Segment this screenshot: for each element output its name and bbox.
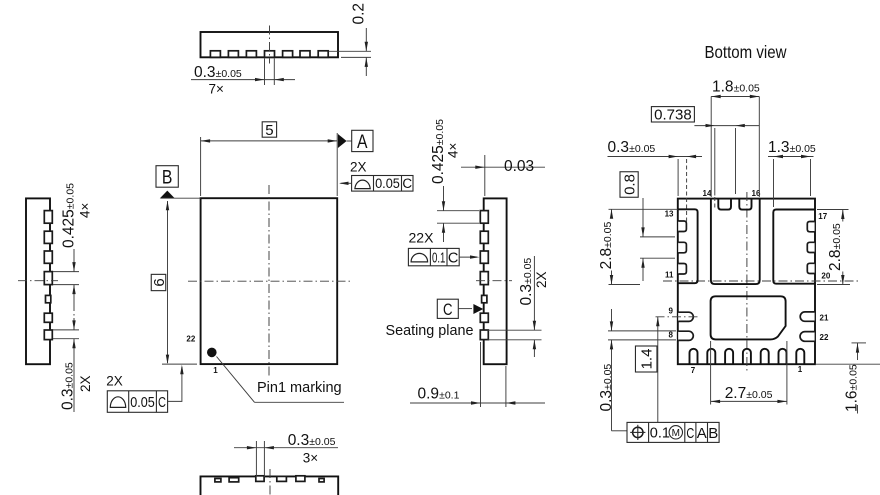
- svg-text:13: 13: [665, 210, 674, 219]
- svg-text:C: C: [158, 394, 166, 411]
- svg-text:2X: 2X: [78, 375, 93, 392]
- svg-text:2X: 2X: [106, 374, 123, 389]
- svg-text:1: 1: [213, 366, 218, 375]
- svg-text:7: 7: [691, 366, 696, 375]
- svg-text:C: C: [448, 250, 458, 266]
- svg-text:7×: 7×: [209, 82, 224, 97]
- svg-text:0.8: 0.8: [622, 174, 639, 195]
- svg-text:C: C: [443, 300, 453, 319]
- svg-text:21: 21: [820, 314, 829, 323]
- svg-text:3×: 3×: [303, 451, 318, 466]
- svg-text:C: C: [686, 425, 694, 442]
- svg-text:0.738: 0.738: [654, 107, 692, 124]
- svg-text:A: A: [357, 132, 368, 153]
- svg-text:C: C: [402, 176, 412, 191]
- svg-text:22X: 22X: [409, 230, 435, 246]
- svg-text:Bottom view: Bottom view: [705, 42, 787, 62]
- svg-text:B: B: [708, 425, 718, 442]
- svg-text:Seating plane: Seating plane: [386, 323, 474, 339]
- svg-text:A: A: [697, 425, 707, 442]
- svg-text:2X: 2X: [350, 160, 367, 175]
- svg-text:5: 5: [265, 122, 273, 139]
- svg-text:6: 6: [151, 278, 168, 286]
- svg-text:8: 8: [669, 331, 674, 340]
- svg-text:0.05: 0.05: [130, 394, 155, 411]
- svg-text:17: 17: [818, 212, 827, 221]
- svg-text:20: 20: [821, 272, 830, 281]
- svg-text:Pin1 marking: Pin1 marking: [257, 380, 342, 396]
- svg-text:0.05: 0.05: [375, 176, 400, 191]
- svg-text:4×: 4×: [78, 203, 93, 218]
- svg-text:1: 1: [798, 365, 803, 374]
- svg-text:0.1: 0.1: [432, 250, 445, 266]
- svg-text:0.1: 0.1: [650, 425, 670, 441]
- svg-text:4×: 4×: [446, 143, 461, 158]
- svg-text:22: 22: [820, 333, 829, 342]
- svg-text:M: M: [672, 428, 680, 439]
- svg-text:0.2: 0.2: [351, 3, 368, 25]
- svg-text:B: B: [162, 167, 173, 188]
- svg-text:0.03: 0.03: [504, 158, 534, 175]
- svg-text:1.4: 1.4: [639, 349, 656, 370]
- svg-text:2X: 2X: [534, 271, 549, 288]
- svg-text:14: 14: [703, 189, 712, 198]
- svg-text:9: 9: [669, 307, 674, 316]
- svg-text:22: 22: [186, 335, 195, 344]
- svg-text:11: 11: [665, 271, 674, 280]
